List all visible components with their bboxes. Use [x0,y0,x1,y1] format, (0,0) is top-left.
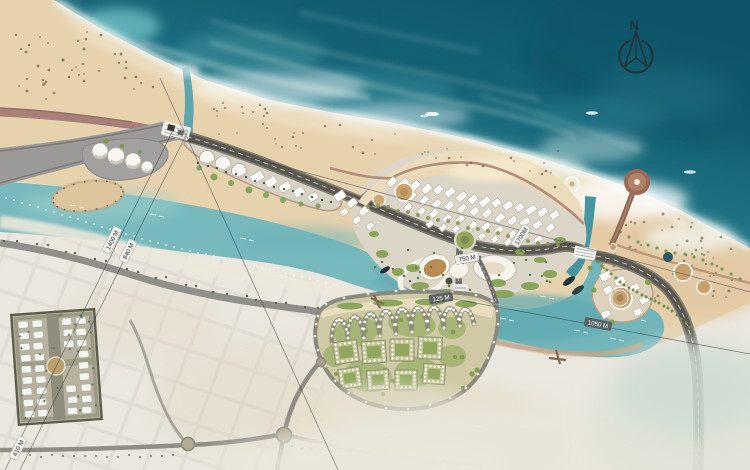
svg-text:N: N [629,17,639,33]
